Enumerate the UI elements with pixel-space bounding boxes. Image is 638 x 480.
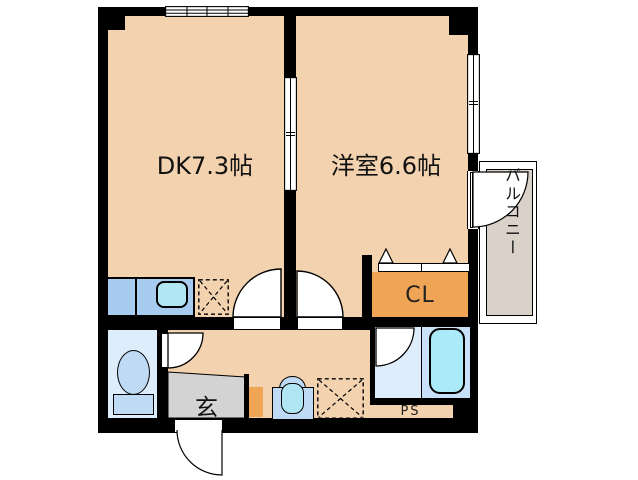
western-room-label: 洋室6.6帖 (320, 149, 452, 177)
balcony-label-text: バルコニー (502, 167, 521, 257)
washing-machine-space (317, 378, 364, 419)
closet-label: CL (372, 278, 468, 312)
toilet-door (168, 333, 203, 368)
floor-plan: PS DK7.3帖 洋室6.6帖 (0, 0, 638, 480)
toilet-bowl (117, 350, 150, 395)
western-room-label-text: 洋室6.6帖 (331, 146, 441, 181)
toilet-tank (113, 394, 154, 415)
pillar-top-left (98, 7, 125, 30)
western-door-sill (297, 317, 343, 330)
dk-room-label-text: DK7.3帖 (157, 146, 253, 181)
closet-door-left (378, 263, 422, 272)
dk-room-label: DK7.3帖 (140, 149, 270, 177)
pillar-top-right (449, 7, 478, 35)
entrance-door (177, 430, 223, 475)
window-top (165, 6, 249, 17)
closet-door-triangle-icon (378, 249, 470, 264)
kitchen-sink (156, 281, 188, 308)
entrance-label: 玄 (168, 391, 245, 418)
dk-door-sill (233, 317, 281, 330)
refrigerator-space (198, 279, 229, 315)
kitchen-counter (106, 277, 137, 317)
shoe-cabinet (249, 387, 263, 417)
dk-door (233, 269, 281, 317)
bathtub (429, 328, 465, 394)
closet-label-text: CL (405, 283, 435, 308)
entrance-label-text: 玄 (195, 388, 218, 422)
closet-side-wall (362, 255, 372, 330)
pillar-bottom-right (453, 398, 478, 433)
balcony-label: バルコニー (496, 167, 523, 315)
closet-door-right (421, 263, 470, 272)
sliding-door-center (284, 77, 297, 191)
western-room-door (297, 271, 343, 317)
pipe-space: PS (368, 405, 453, 418)
bathroom-door (376, 328, 414, 366)
window-right (467, 54, 480, 154)
washbasin-bowl (281, 383, 304, 414)
pipe-space-label: PS (400, 404, 420, 419)
